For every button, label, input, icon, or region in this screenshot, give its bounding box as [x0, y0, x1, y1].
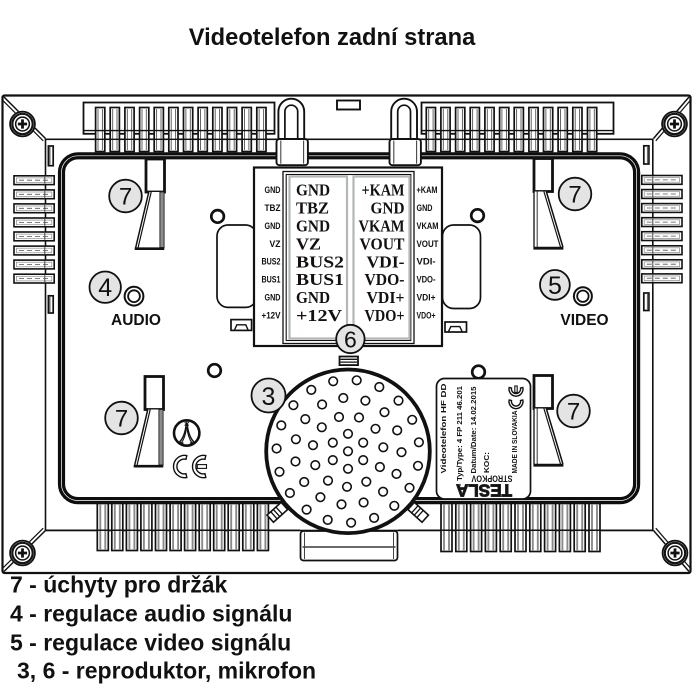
svg-text:7: 7	[567, 399, 580, 426]
svg-text:3, 6 - reproduktor, mikrofon: 3, 6 - reproduktor, mikrofon	[17, 658, 316, 684]
svg-text:VZ: VZ	[270, 239, 281, 250]
svg-text:Typ/Type: 4 FP 211 46.201: Typ/Type: 4 FP 211 46.201	[457, 386, 464, 481]
svg-text:+KAM: +KAM	[362, 181, 405, 200]
svg-text:VOUT: VOUT	[417, 239, 439, 250]
svg-text:5: 5	[548, 272, 562, 300]
svg-text:5 - regulace video signálu: 5 - regulace video signálu	[10, 630, 291, 656]
svg-text:GND: GND	[265, 221, 281, 232]
svg-text:7: 7	[119, 184, 132, 211]
svg-text:+12V: +12V	[296, 306, 343, 325]
svg-text:4: 4	[98, 274, 112, 302]
svg-text:MADE IN SLOVAKIA: MADE IN SLOVAKIA	[512, 411, 519, 474]
svg-text:BUS2: BUS2	[296, 252, 344, 271]
svg-text:7 - úchyty pro držák: 7 - úchyty pro držák	[10, 572, 227, 598]
svg-text:4 - regulace audio signálu: 4 - regulace audio signálu	[10, 601, 292, 627]
svg-text:Videotelefon HF DD: Videotelefon HF DD	[441, 384, 448, 474]
svg-text:VDO-: VDO-	[365, 270, 405, 289]
svg-text:AUDIO: AUDIO	[111, 312, 161, 329]
svg-text:VDI+: VDI+	[417, 293, 436, 304]
svg-text:VDO+: VDO+	[417, 311, 436, 322]
svg-text:BUS2: BUS2	[262, 257, 281, 268]
svg-text:VDO-: VDO-	[417, 275, 436, 286]
svg-text:BUS1: BUS1	[262, 275, 282, 286]
svg-text:VDO+: VDO+	[365, 306, 405, 325]
svg-text:VIDEO: VIDEO	[560, 312, 608, 329]
svg-text:TESLA: TESLA	[456, 481, 512, 501]
svg-text:VOUT: VOUT	[360, 234, 406, 253]
svg-text:KOC:: KOC:	[484, 452, 491, 473]
svg-text:GND: GND	[296, 288, 330, 307]
svg-text:TBZ: TBZ	[296, 198, 329, 217]
svg-text:GND: GND	[417, 203, 433, 214]
svg-text:VZ: VZ	[296, 234, 321, 253]
svg-text:GND: GND	[296, 181, 330, 200]
svg-text:BUS1: BUS1	[296, 270, 344, 289]
svg-text:7: 7	[568, 182, 581, 209]
svg-text:7: 7	[115, 406, 128, 433]
svg-text:GND: GND	[296, 216, 330, 235]
svg-text:6: 6	[344, 327, 357, 353]
svg-text:GND: GND	[265, 185, 281, 196]
svg-text:VKAM: VKAM	[359, 216, 405, 235]
svg-text:VDI+: VDI+	[367, 288, 405, 307]
svg-text:VDI-: VDI-	[367, 252, 405, 271]
svg-text:Datum/Date: 14.02.2015: Datum/Date: 14.02.2015	[471, 386, 478, 473]
svg-text:+12V: +12V	[262, 311, 282, 322]
svg-text:VKAM: VKAM	[417, 221, 439, 232]
svg-text:+KAM: +KAM	[417, 185, 438, 196]
svg-text:GND: GND	[371, 198, 405, 217]
svg-text:3: 3	[262, 383, 276, 411]
svg-text:TBZ: TBZ	[265, 203, 281, 214]
svg-text:VDI-: VDI-	[417, 257, 436, 268]
svg-text:Videotelefon zadní strana: Videotelefon zadní strana	[189, 25, 476, 51]
svg-text:GND: GND	[265, 293, 281, 304]
